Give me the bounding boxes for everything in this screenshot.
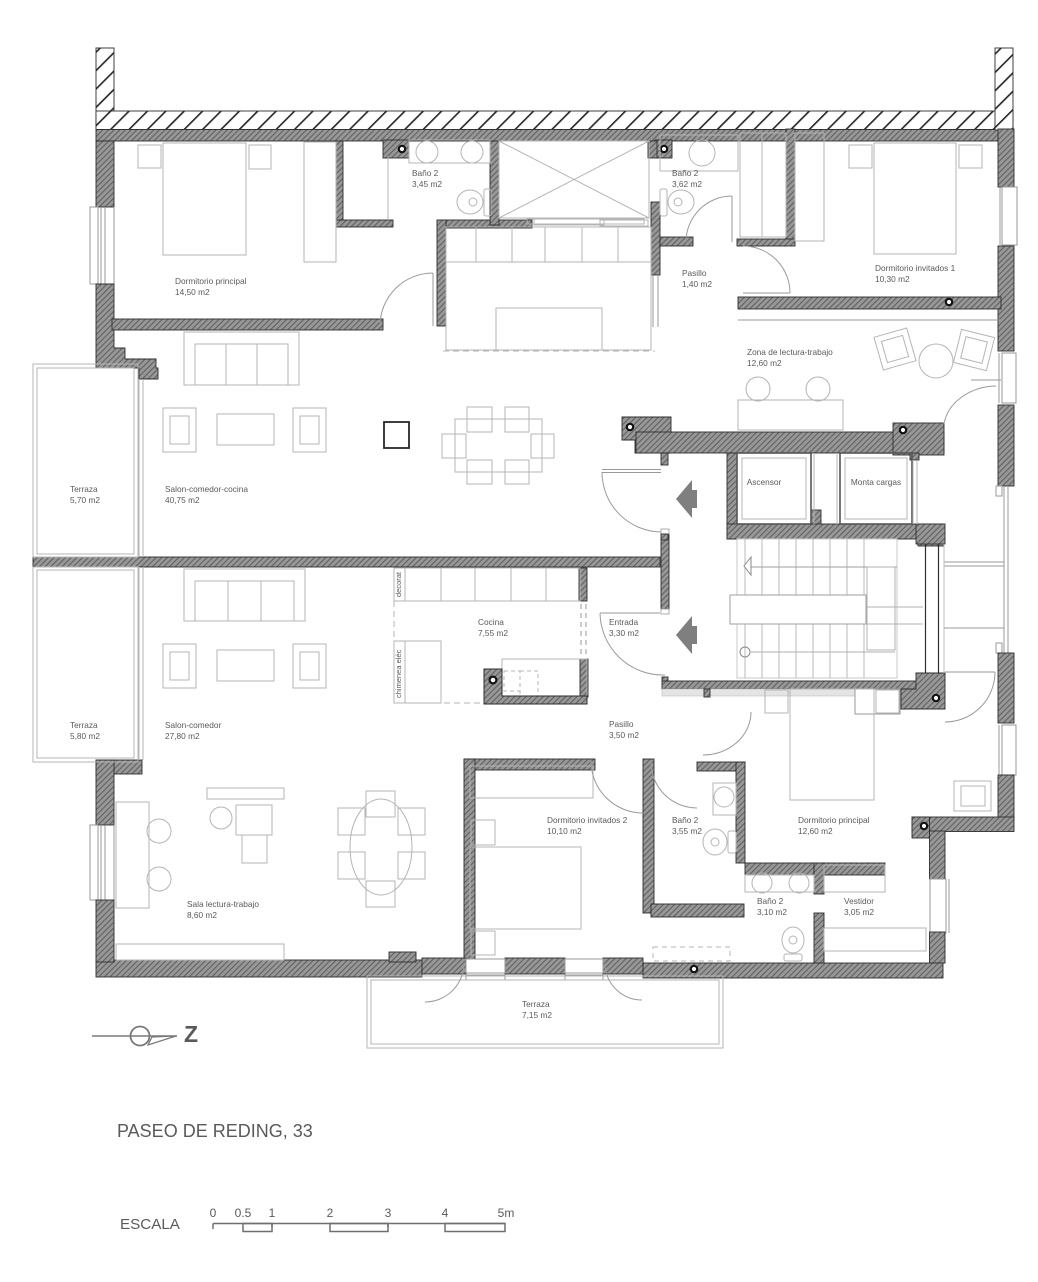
svg-text:1: 1 (269, 1206, 276, 1220)
svg-text:decorat: decorat (394, 571, 403, 597)
svg-text:Baño 2: Baño 2 (757, 896, 784, 906)
svg-text:3,50 m2: 3,50 m2 (609, 730, 639, 740)
svg-text:Salon-comedor: Salon-comedor (165, 720, 222, 730)
svg-text:3,10 m2: 3,10 m2 (757, 907, 787, 917)
svg-text:Baño 2: Baño 2 (412, 168, 439, 178)
svg-text:3,45 m2: 3,45 m2 (412, 179, 442, 189)
svg-text:3,05 m2: 3,05 m2 (844, 907, 874, 917)
svg-text:Pasillo: Pasillo (609, 719, 634, 729)
svg-text:10,30 m2: 10,30 m2 (875, 274, 910, 284)
svg-text:7,15 m2: 7,15 m2 (522, 1010, 552, 1020)
svg-text:Terraza: Terraza (70, 720, 98, 730)
svg-text:Salon-comedor-cocina: Salon-comedor-cocina (165, 484, 248, 494)
svg-text:Baño 2: Baño 2 (672, 815, 699, 825)
svg-text:Sala lectura-trabajo: Sala lectura-trabajo (187, 899, 259, 909)
svg-text:Vestidor: Vestidor (844, 896, 874, 906)
svg-text:3,30 m2: 3,30 m2 (609, 628, 639, 638)
svg-text:0.5: 0.5 (235, 1206, 252, 1220)
svg-text:10,10 m2: 10,10 m2 (547, 826, 582, 836)
svg-text:Dormitorio principal: Dormitorio principal (798, 815, 870, 825)
svg-text:Terraza: Terraza (522, 999, 550, 1009)
svg-text:PASEO DE REDING, 33: PASEO DE REDING, 33 (117, 1121, 313, 1141)
svg-text:3,62 m2: 3,62 m2 (672, 179, 702, 189)
svg-text:chimenea eléc: chimenea eléc (394, 649, 403, 698)
svg-text:Entrada: Entrada (609, 617, 638, 627)
svg-text:5,80 m2: 5,80 m2 (70, 731, 100, 741)
svg-text:3: 3 (385, 1206, 392, 1220)
svg-text:27,80 m2: 27,80 m2 (165, 731, 200, 741)
svg-text:2: 2 (327, 1206, 334, 1220)
svg-text:5,70 m2: 5,70 m2 (70, 495, 100, 505)
svg-text:Cocina: Cocina (478, 617, 504, 627)
svg-text:Terraza: Terraza (70, 484, 98, 494)
svg-text:12,60 m2: 12,60 m2 (747, 358, 782, 368)
svg-text:Ascensor: Ascensor (747, 477, 782, 487)
svg-text:Dormitorio principal: Dormitorio principal (175, 276, 247, 286)
svg-text:4: 4 (442, 1206, 449, 1220)
svg-text:Baño 2: Baño 2 (672, 168, 699, 178)
svg-text:1,40 m2: 1,40 m2 (682, 279, 712, 289)
svg-text:Dormitorio invitados 2: Dormitorio invitados 2 (547, 815, 628, 825)
svg-text:Dormitorio invitados 1: Dormitorio invitados 1 (875, 263, 956, 273)
svg-text:3,55 m2: 3,55 m2 (672, 826, 702, 836)
svg-text:40,75 m2: 40,75 m2 (165, 495, 200, 505)
svg-text:12,60 m2: 12,60 m2 (798, 826, 833, 836)
svg-text:ESCALA: ESCALA (120, 1216, 181, 1233)
svg-text:Pasillo: Pasillo (682, 268, 707, 278)
svg-text:Zona de lectura-trabajo: Zona de lectura-trabajo (747, 347, 833, 357)
svg-text:7,55 m2: 7,55 m2 (478, 628, 508, 638)
svg-text:8,60 m2: 8,60 m2 (187, 910, 217, 920)
svg-text:0: 0 (210, 1206, 217, 1220)
svg-text:5m: 5m (498, 1206, 515, 1220)
svg-text:Monta cargas: Monta cargas (851, 477, 901, 487)
svg-text:Z: Z (184, 1021, 198, 1047)
svg-text:14,50 m2: 14,50 m2 (175, 287, 210, 297)
